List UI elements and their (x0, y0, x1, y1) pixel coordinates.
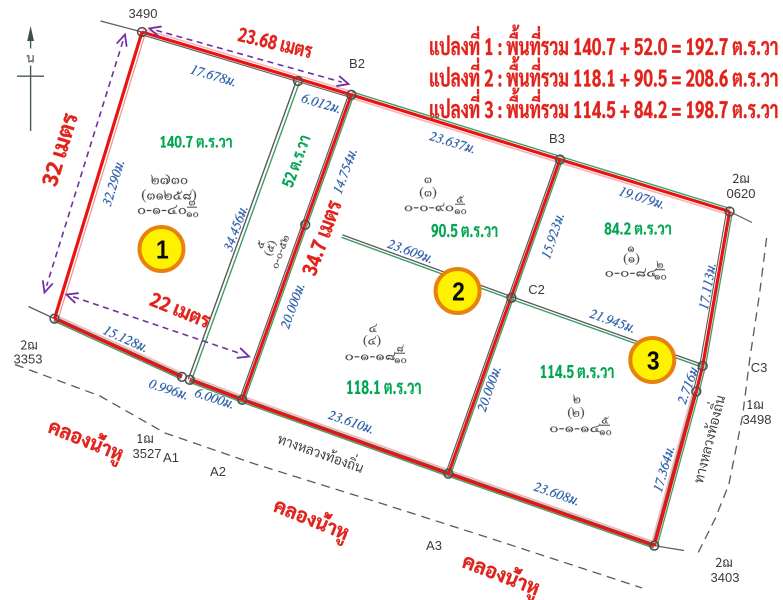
svg-text:3353: 3353 (14, 352, 43, 367)
svg-text:C2: C2 (528, 282, 545, 297)
svg-text:3: 3 (647, 347, 660, 376)
svg-text:C3: C3 (751, 360, 768, 375)
svg-text:A1: A1 (163, 450, 179, 465)
svg-text:A2: A2 (210, 464, 226, 479)
svg-text:B3: B3 (549, 131, 565, 146)
svg-text:3527: 3527 (133, 446, 162, 461)
svg-text:1: 1 (156, 236, 169, 265)
svg-text:0620: 0620 (727, 186, 756, 201)
svg-text:B2: B2 (349, 56, 365, 71)
svg-text:3498: 3498 (743, 412, 772, 427)
svg-text:3490: 3490 (129, 6, 158, 21)
svg-text:A3: A3 (426, 538, 442, 553)
svg-text:2: 2 (452, 278, 465, 307)
svg-text:3403: 3403 (711, 570, 740, 585)
